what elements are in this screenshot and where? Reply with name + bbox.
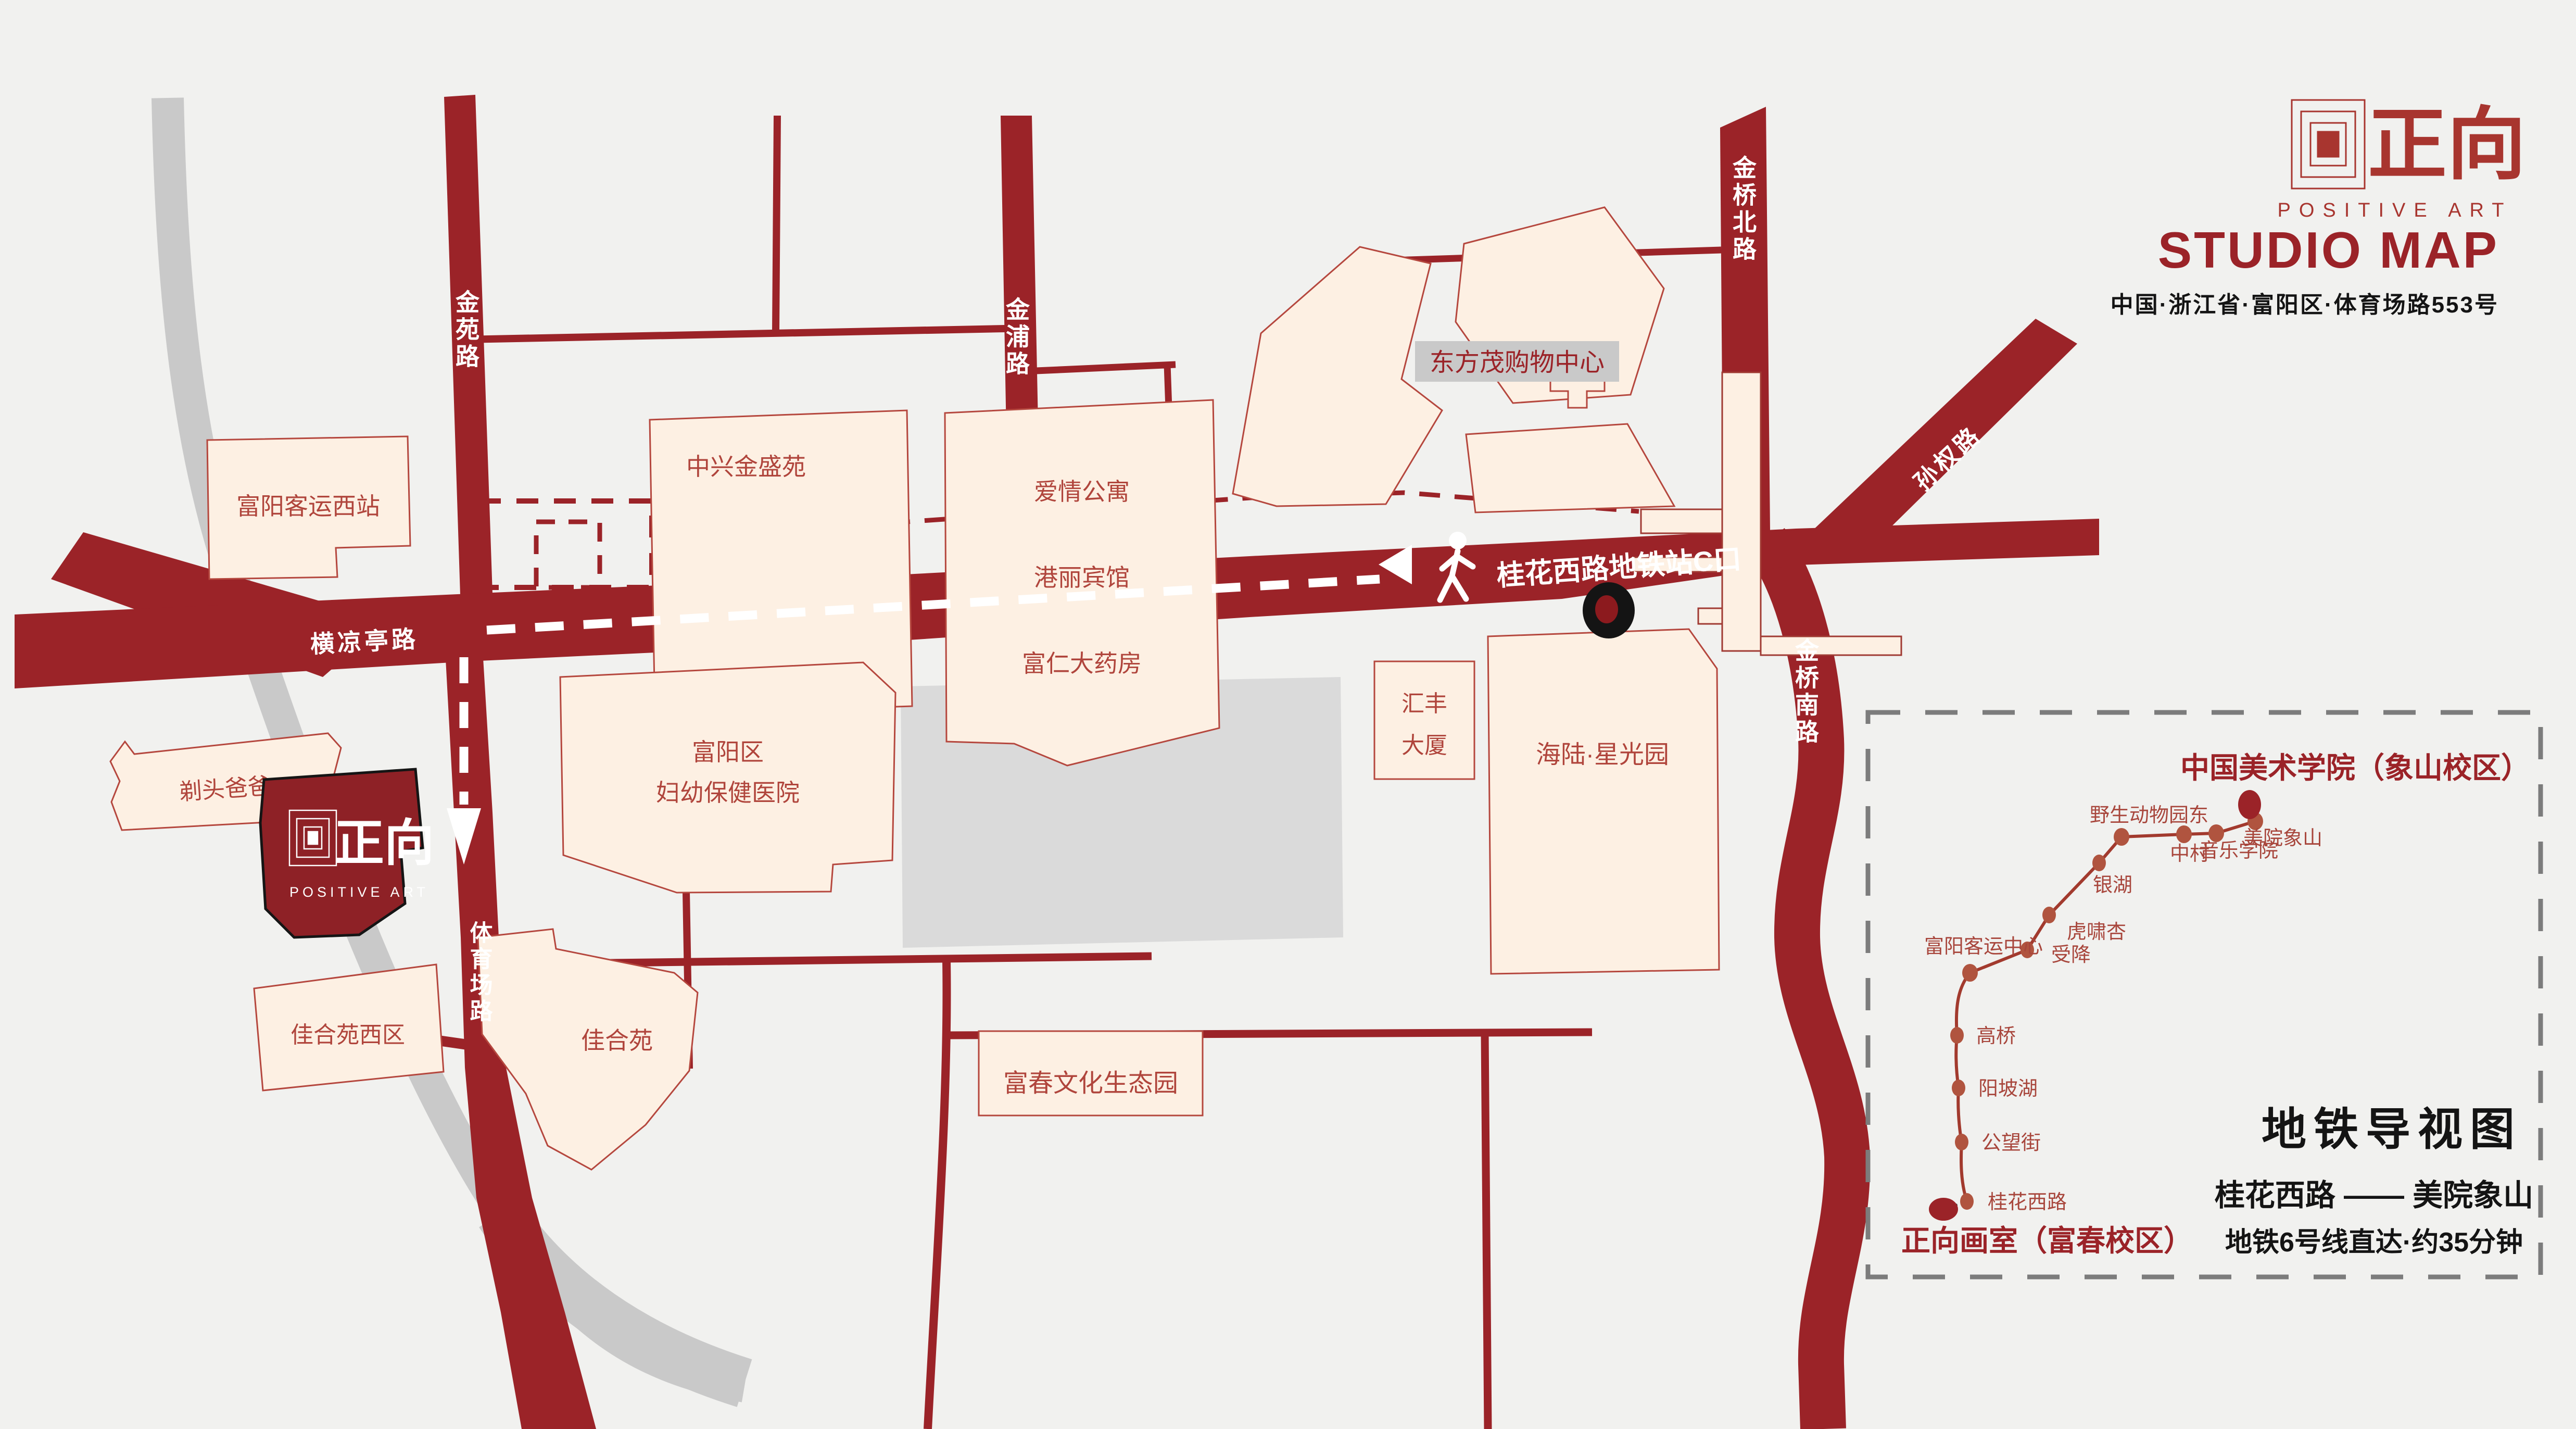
station-label: 野生动物园东: [2090, 805, 2208, 826]
station-label: 美院象山: [2243, 828, 2322, 849]
header-address: 中国·浙江省·富阳区·体育场路553号: [2111, 292, 2499, 318]
studio-building: 正向 POSITIVE ART: [260, 769, 434, 937]
station-label: 阳坡湖: [1978, 1078, 2038, 1100]
page-title: STUDIO MAP: [2158, 221, 2499, 279]
label-hailu: 海陆·星光园: [1536, 741, 1669, 769]
station-label: 虎啸杏: [2067, 921, 2126, 943]
station-label: 富阳客运中心: [1924, 936, 2043, 958]
dashed-area: [536, 522, 600, 587]
label-west-station: 富阳客运西站: [236, 493, 380, 520]
label-fuchun-park: 富春文化生态园: [1003, 1070, 1178, 1097]
label-jiaheyuan-west: 佳合苑西区: [291, 1022, 405, 1048]
marker-inner-dot: [1595, 595, 1618, 623]
station-dot: [1962, 964, 1978, 982]
building-dongfangmao-south: [1466, 424, 1674, 512]
station-dot: [2042, 907, 2056, 923]
studio-logo-zh: 正向: [334, 816, 434, 871]
dongfangmao-label-group: 东方茂购物中心: [1415, 341, 1619, 382]
building-hailu: [1488, 629, 1719, 974]
station-dot: [2114, 828, 2129, 846]
endpoint-dot-academy: [2238, 790, 2261, 819]
station-label: 银湖: [2093, 874, 2132, 896]
metro-panel: 桂花西路 公望街 阳坡湖 高桥 富阳客运中心 受降 虎啸杏 银湖 野生动物园东 …: [1868, 712, 2541, 1277]
label-gangli-hotel: 港丽宾馆: [1034, 564, 1130, 591]
label-love-apartment: 爱情公寓: [1034, 478, 1130, 505]
studio-logo-spiral-icon: [289, 810, 336, 866]
station-label: 受降: [2051, 944, 2091, 966]
metro-panel-route: 桂花西路 —— 美院象山: [2215, 1179, 2533, 1212]
station-arm-foot: [1698, 608, 1722, 624]
station-label: 桂花西路: [1988, 1192, 2067, 1213]
label-furen-pharmacy: 富仁大药房: [1022, 650, 1142, 677]
endpoint-dot-studio: [1929, 1198, 1958, 1221]
road-label-jinqiao-south: 金桥南路: [1792, 638, 1820, 746]
metro-panel-note: 地铁6号线直达·约35分钟: [2225, 1227, 2523, 1258]
station-label: 公望街: [1981, 1132, 2041, 1154]
metro-panel-title: 地铁导视图: [2262, 1105, 2522, 1155]
road-label-tiyuchang: 体育场路: [466, 921, 493, 1025]
map-canvas: 金苑路 金浦路 金桥北路 孙权路 金桥南路 横凉亭路 体育场路 桂花西路地铁站C…: [0, 0, 2576, 1429]
station-dot: [1950, 1027, 1964, 1044]
header: 正向 POSITIVE ART STUDIO MAP 中国·浙江省·富阳区·体育…: [2111, 100, 2526, 318]
label-dongfangmao: 东方茂购物中心: [1430, 349, 1605, 377]
studio-map-poster: 金苑路 金浦路 金桥北路 孙权路 金桥南路 横凉亭路 体育场路 桂花西路地铁站C…: [0, 0, 2576, 1429]
minor-road: [463, 328, 1031, 340]
station-arm-east: [1761, 636, 1901, 655]
minor-road: [1485, 1033, 1488, 1429]
label-hospital-1: 富阳区: [692, 738, 764, 766]
station-label: 高桥: [1976, 1025, 2016, 1047]
station-band: [1722, 372, 1761, 651]
building-hospital: [560, 662, 895, 893]
station-dot: [1955, 1134, 1968, 1150]
label-huifeng-2: 大厦: [1401, 733, 1447, 758]
brand-logo-en: POSITIVE ART: [2277, 199, 2512, 221]
station-dot: [2176, 825, 2192, 843]
dashed-area: [479, 501, 652, 587]
station-dot: [2092, 855, 2106, 871]
metro-exit-marker-icon: [1583, 582, 1635, 638]
building-huifeng: [1374, 661, 1474, 779]
road-label-hengliangting: 横凉亭路: [310, 625, 419, 658]
label-zhongxing: 中兴金盛苑: [686, 453, 806, 480]
metro-endpoint-bottom-label: 正向画室（富春校区）: [1901, 1224, 2193, 1257]
label-jiaheyuan: 佳合苑: [581, 1027, 653, 1054]
building-dongfangmao-west: [1233, 247, 1442, 506]
station-dot: [2208, 824, 2224, 842]
label-hospital-2: 妇幼保健医院: [656, 779, 800, 806]
station-dot: [1952, 1080, 1965, 1096]
label-huifeng-1: 汇丰: [1401, 691, 1447, 717]
brand-logo-zh: 正向: [2368, 101, 2526, 189]
road-label-jinyuan: 金苑路: [452, 290, 480, 371]
minor-road: [776, 116, 777, 333]
station-dot: [1960, 1193, 1974, 1210]
station-arm-northwest: [1641, 509, 1722, 533]
studio-logo-en: POSITIVE ART: [289, 884, 429, 900]
brand-logo-spiral-icon: [2292, 100, 2365, 189]
minor-road: [928, 961, 946, 1429]
metro-endpoint-top-label: 中国美术学院（象山校区）: [2180, 751, 2530, 784]
road-label-jinpu: 金浦路: [1003, 297, 1030, 378]
road-label-jinqiao-north: 金桥北路: [1729, 155, 1757, 264]
